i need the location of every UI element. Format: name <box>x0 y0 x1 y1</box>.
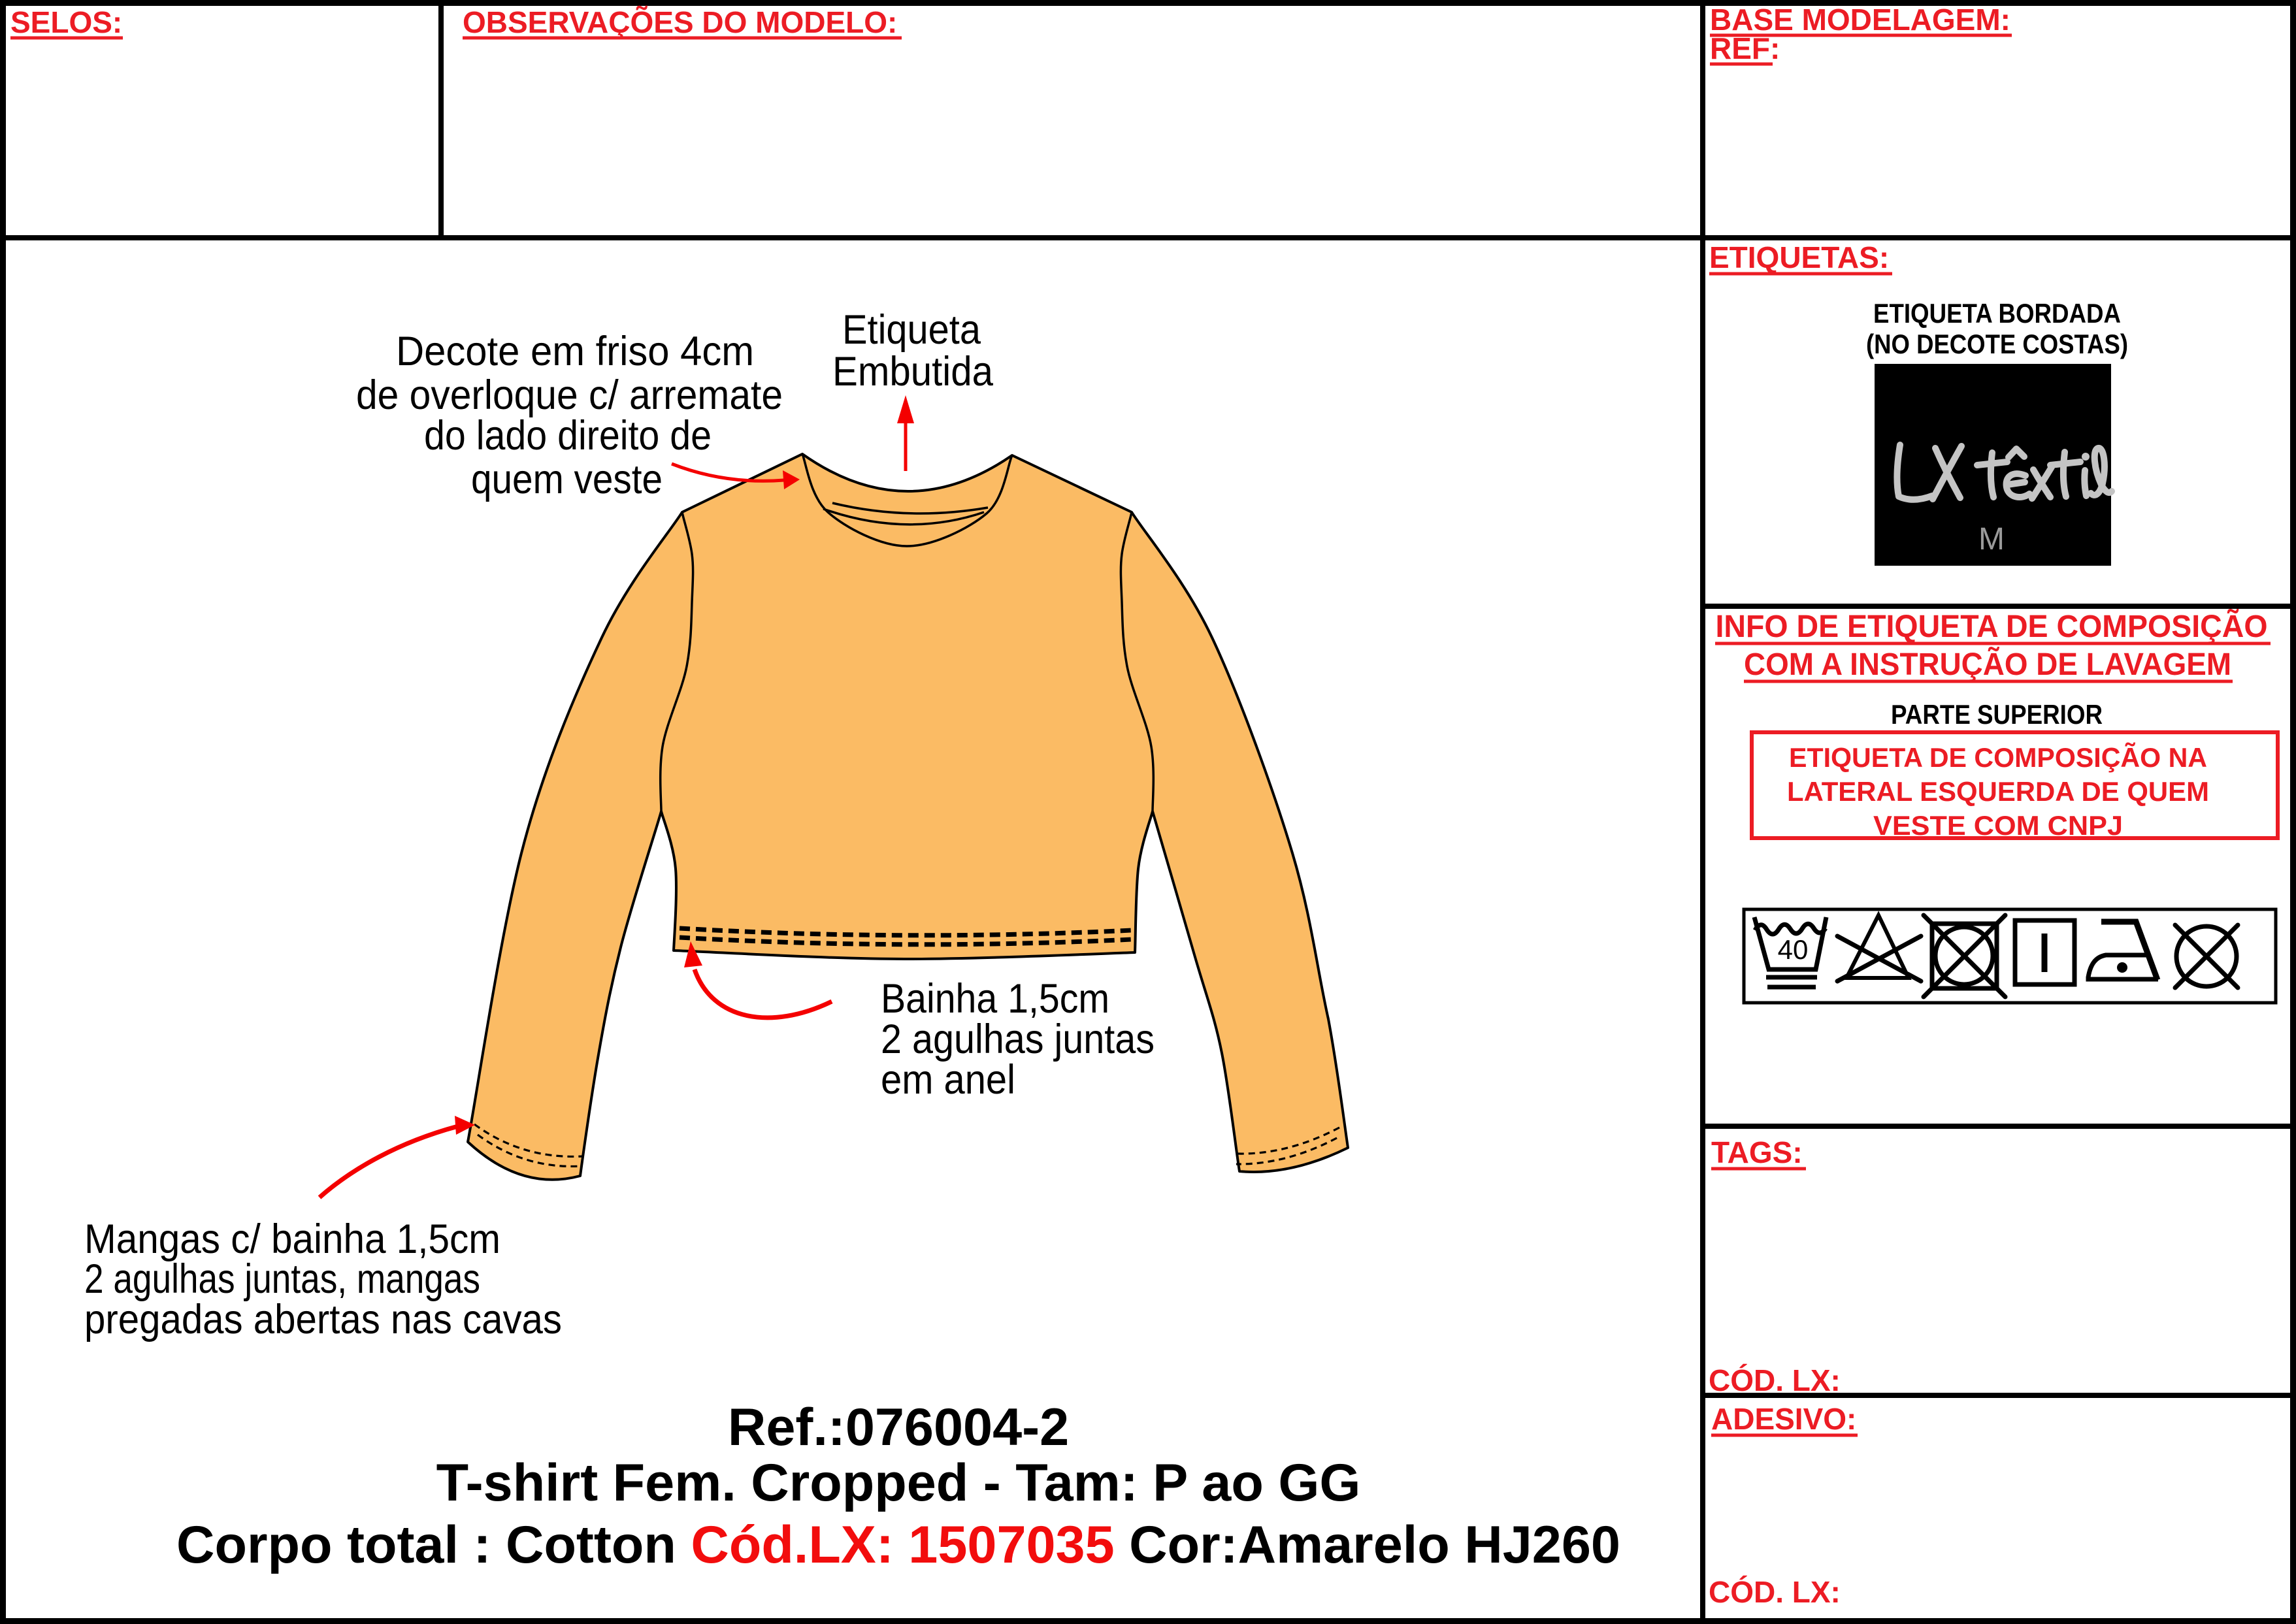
svg-text:40: 40 <box>1778 934 1809 965</box>
svg-text:ETIQUETAS:: ETIQUETAS: <box>1709 240 1889 274</box>
svg-text:do lado direito de: do lado direito de <box>424 413 712 459</box>
svg-text:Mangas c/ bainha 1,5cm: Mangas c/ bainha 1,5cm <box>84 1216 500 1262</box>
svg-text:de overloque c/ arremate: de overloque c/ arremate <box>356 372 783 418</box>
svg-text:CÓD. LX:: CÓD. LX: <box>1709 1363 1841 1397</box>
svg-text:ETIQUETA BORDADA: ETIQUETA BORDADA <box>1873 298 2121 329</box>
svg-text:Embutida: Embutida <box>832 349 994 395</box>
svg-text:Etiqueta: Etiqueta <box>842 307 981 353</box>
svg-text:T-shirt Fem. Cropped - Tam: P: T-shirt Fem. Cropped - Tam: P ao GG <box>436 1453 1361 1512</box>
svg-text:2 agulhas juntas, mangas: 2 agulhas juntas, mangas <box>84 1256 480 1302</box>
svg-text:M: M <box>1978 522 2005 557</box>
svg-text:Ref.:076004-2: Ref.:076004-2 <box>728 1398 1069 1457</box>
svg-text:ADESIVO:: ADESIVO: <box>1711 1402 1856 1436</box>
svg-text:2 agulhas juntas: 2 agulhas juntas <box>881 1016 1155 1062</box>
svg-text:INFO DE ETIQUETA DE COMPOSIÇÃO: INFO DE ETIQUETA DE COMPOSIÇÃO <box>1716 608 2268 644</box>
svg-text:quem veste: quem veste <box>471 457 663 502</box>
svg-text:OBSERVAÇÕES DO MODELO:: OBSERVAÇÕES DO MODELO: <box>463 5 897 39</box>
svg-text:VESTE COM CNPJ: VESTE COM CNPJ <box>1873 810 2123 841</box>
svg-text:LATERAL ESQUERDA DE QUEM: LATERAL ESQUERDA DE QUEM <box>1787 776 2209 807</box>
svg-text:CÓD. LX:: CÓD. LX: <box>1709 1575 1841 1609</box>
svg-text:pregadas abertas nas cavas: pregadas abertas nas cavas <box>84 1297 562 1342</box>
svg-text:PARTE SUPERIOR: PARTE SUPERIOR <box>1891 699 2103 730</box>
svg-text:Corpo total : Cotton Cód.LX: 1: Corpo total : Cotton Cód.LX: 1507035 Cor… <box>176 1516 1620 1574</box>
svg-text:REF:: REF: <box>1710 31 1780 65</box>
svg-text:em anel: em anel <box>881 1057 1015 1103</box>
svg-text:(NO DECOTE COSTAS): (NO DECOTE COSTAS) <box>1866 329 2128 359</box>
svg-text:TAGS:: TAGS: <box>1711 1135 1803 1169</box>
svg-text:Bainha 1,5cm: Bainha 1,5cm <box>881 976 1109 1022</box>
svg-text:COM A INSTRUÇÃO DE LAVAGEM: COM A INSTRUÇÃO DE LAVAGEM <box>1744 646 2231 682</box>
svg-text:SELOS:: SELOS: <box>10 5 122 39</box>
svg-text:Decote em friso 4cm: Decote em friso 4cm <box>396 329 754 374</box>
svg-text:ETIQUETA DE COMPOSIÇÃO NA: ETIQUETA DE COMPOSIÇÃO NA <box>1789 742 2207 773</box>
